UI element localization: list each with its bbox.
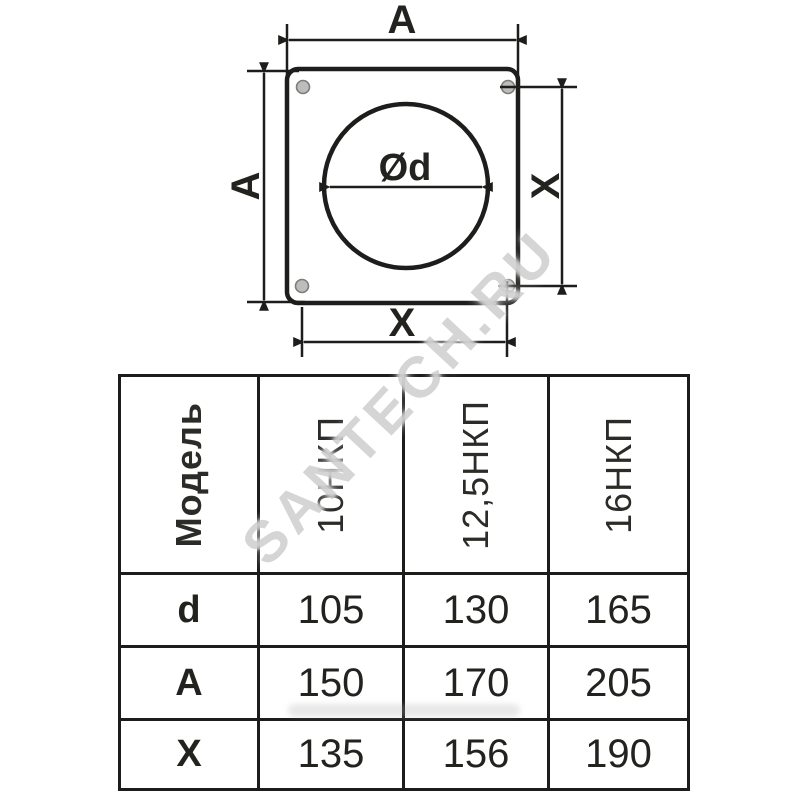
value-a-12-5nkp: 170 [443,661,510,706]
value-d-10nkp: 105 [298,588,365,633]
dimensions-table: Модель 10НКП 12,5НКП 16НКП d 105 130 165… [118,374,690,791]
value-d-16nkp: 165 [585,588,652,633]
value-a-10nkp: 150 [298,661,365,706]
value-d-12-5nkp: 130 [443,588,510,633]
dim-label-x-bottom: X [389,301,416,345]
table-row-d-label-cell: d [121,572,257,645]
table-cell-x-12-5nkp: 156 [402,718,547,788]
value-x-16nkp: 190 [585,732,652,777]
dim-label-a-left: A [224,172,268,201]
value-x-10nkp: 135 [298,732,365,777]
table-cell-a-10nkp: 150 [257,645,402,718]
screw-hole-top-left [297,81,310,94]
table-header-model-label: Модель [168,402,210,547]
table-header-col-12-5nkp-label: 12,5НКП [455,400,497,550]
dim-label-a-top: A [388,0,417,42]
table-row-x-label-cell: X [121,718,257,788]
product-drawing-page: A A X X Ød Модель [0,0,800,800]
table-header-col-10nkp: 10НКП [257,377,402,572]
table-header-col-10nkp-label: 10НКП [310,416,352,534]
table-header-col-16nkp-label: 16НКП [598,416,640,534]
dim-label-x-right: X [524,172,568,199]
row-d-label: d [177,589,200,632]
row-x-label: X [176,733,201,776]
table-header-model-cell: Модель [121,377,257,572]
table-row-a-label-cell: A [121,645,257,718]
screw-hole-bottom-left [296,280,309,293]
table-cell-d-12-5nkp: 130 [402,572,547,645]
table-cell-d-10nkp: 105 [257,572,402,645]
table-cell-x-16nkp: 190 [547,718,687,788]
table-cell-x-10nkp: 135 [257,718,402,788]
flange-drawing: A A X X Ød [0,0,800,374]
value-x-12-5nkp: 156 [443,732,510,777]
table-cell-a-12-5nkp: 170 [402,645,547,718]
table-cell-d-16nkp: 165 [547,572,687,645]
value-a-16nkp: 205 [585,661,652,706]
table-cell-a-16nkp: 205 [547,645,687,718]
table-header-col-12-5nkp: 12,5НКП [402,377,547,572]
row-a-label: A [175,662,202,705]
dim-label-diameter: Ød [379,147,432,189]
table-header-col-16nkp: 16НКП [547,377,687,572]
